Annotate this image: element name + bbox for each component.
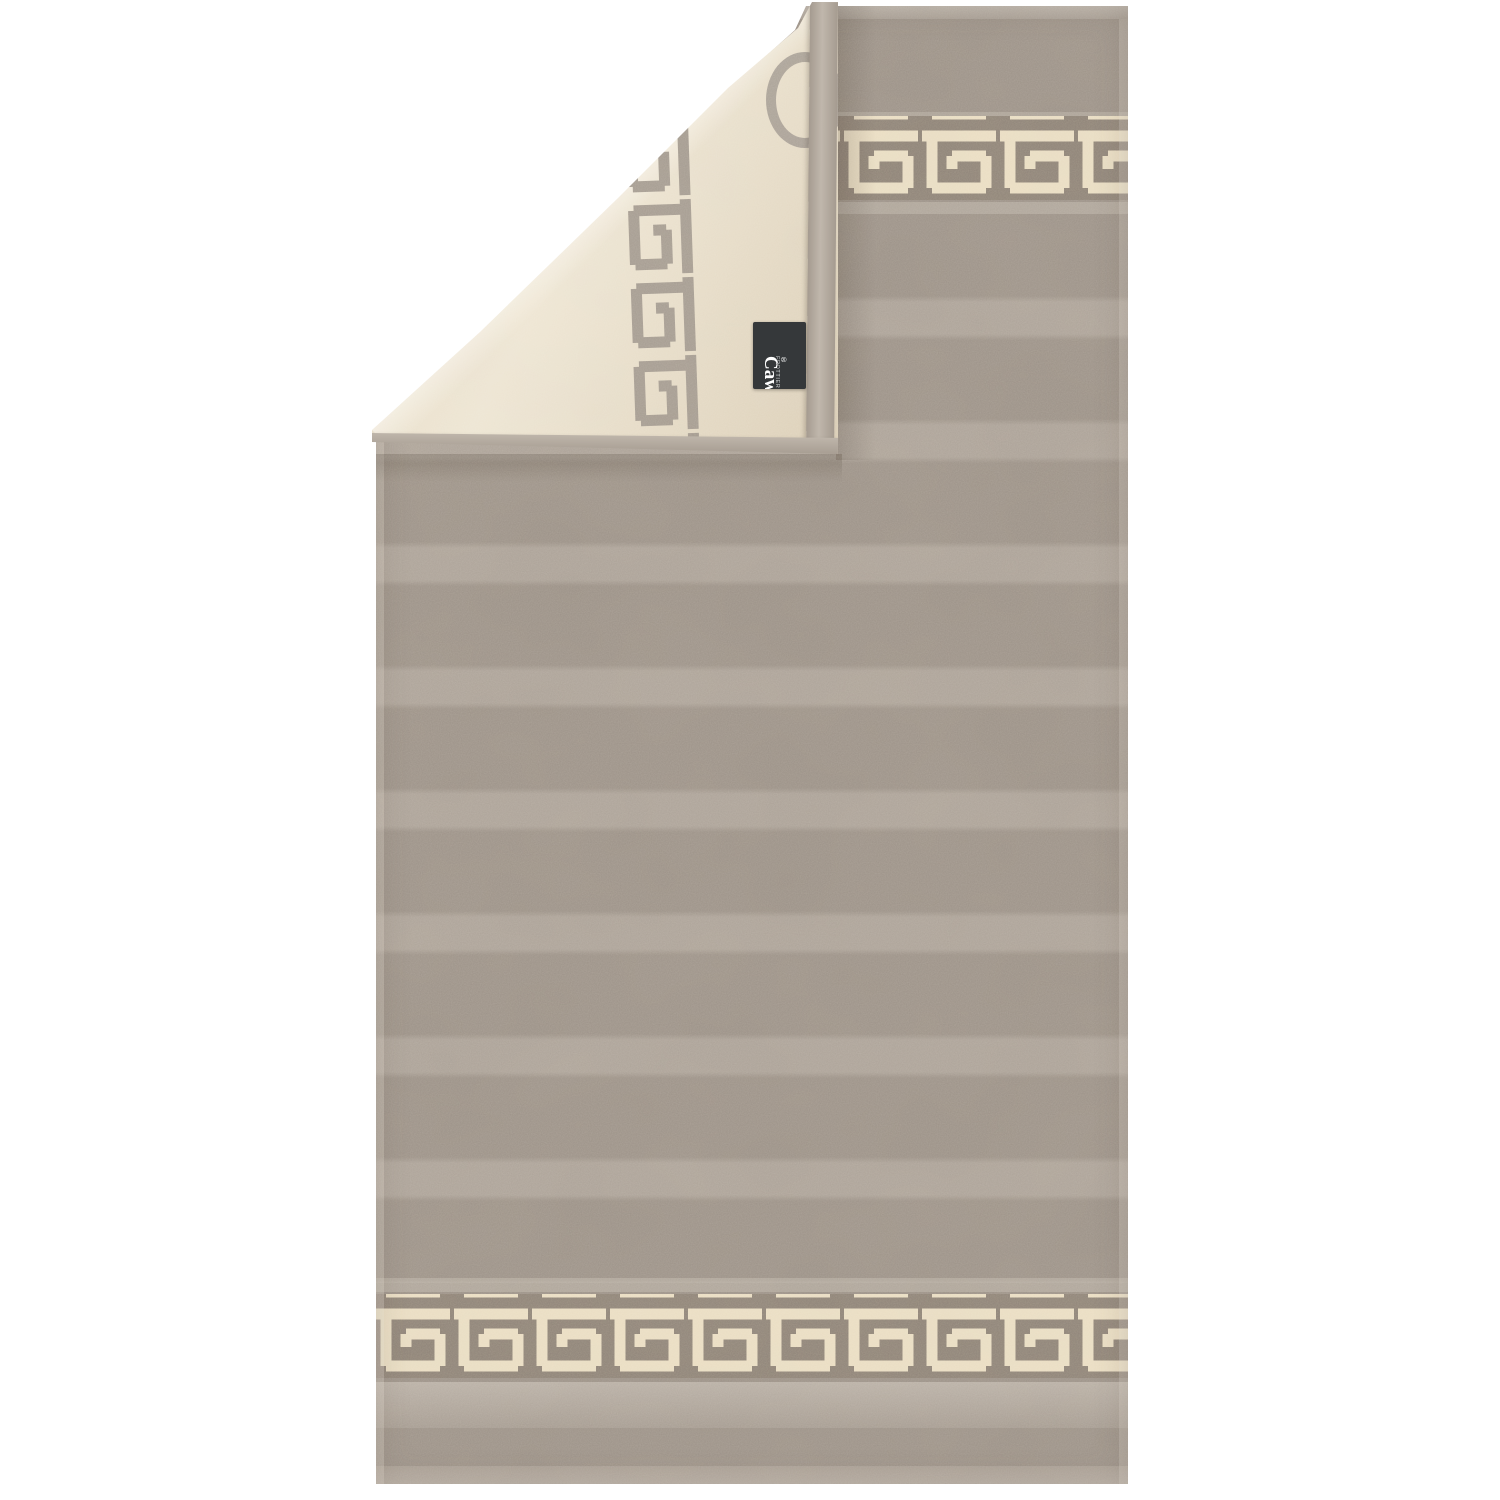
brand-label: FROTTIER Cawö ® xyxy=(753,322,806,389)
towel-back-flap: FROTTIER Cawö ® xyxy=(370,2,838,464)
brand-wordmark: Cawö xyxy=(761,356,780,390)
registered-mark: ® xyxy=(779,356,787,363)
product-photo: FROTTIER Cawö ® xyxy=(0,0,1500,1500)
fold-edge-tape xyxy=(806,2,838,460)
grain-texture xyxy=(370,2,838,464)
